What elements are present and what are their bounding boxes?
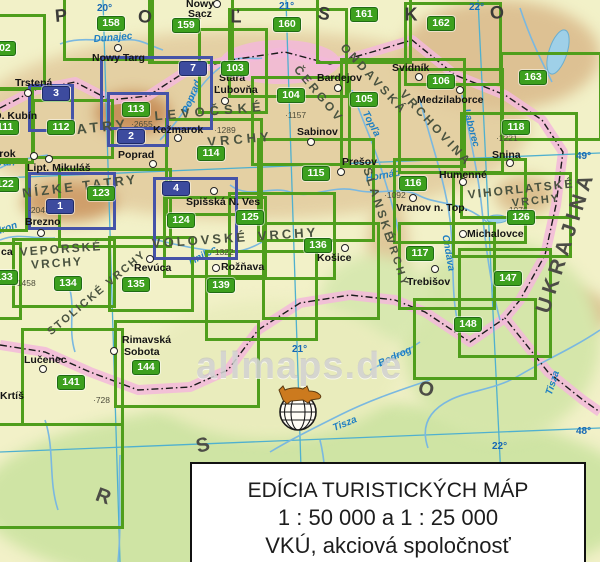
sheet-badge-133[interactable]: 133 — [0, 270, 18, 285]
sheet-badge-103[interactable]: 103 — [221, 61, 249, 76]
sheet-badge-148[interactable]: 148 — [454, 317, 482, 332]
town-label: Košice — [317, 252, 351, 264]
watermark-text: allmaps.de — [196, 345, 402, 388]
sheet-badge-161[interactable]: 161 — [350, 7, 378, 22]
sheet-badge-4[interactable]: 4 — [162, 181, 190, 196]
country-letter-polsko: P — [54, 5, 68, 27]
sheet-badge-122[interactable]: 122 — [0, 177, 19, 192]
town-marker — [174, 134, 182, 142]
town-marker — [334, 84, 342, 92]
town-label: Lučenec — [24, 354, 67, 366]
graticule-label: 21° — [279, 1, 294, 12]
country-letter-polsko: O — [137, 6, 153, 28]
country-letter-polsko: O — [489, 2, 506, 25]
town-label: Ľubovňa — [214, 84, 258, 96]
sheet-badge-123[interactable]: 123 — [87, 186, 115, 201]
sheet-badge-102[interactable]: 102 — [0, 41, 16, 56]
sheet-badge-134[interactable]: 134 — [54, 276, 82, 291]
elevation-label: ·1092 — [384, 190, 406, 200]
sheet-badge-106[interactable]: 106 — [427, 74, 455, 89]
map-sheet-140-outline[interactable] — [0, 423, 124, 529]
town-marker — [307, 138, 315, 146]
town-marker — [459, 178, 467, 186]
graticule-label: 48° — [576, 426, 591, 437]
map-sheet-148-outline[interactable] — [413, 298, 537, 380]
elevation-label: ·1289 — [214, 125, 236, 135]
edition-publisher: VKÚ, akciová spoločnosť — [192, 532, 584, 560]
sheet-badge-125[interactable]: 125 — [236, 210, 264, 225]
sheet-badge-114[interactable]: 114 — [197, 146, 225, 161]
graticule-label: 49° — [576, 151, 591, 162]
town-marker — [341, 244, 349, 252]
town-marker — [213, 0, 221, 8]
sheet-badge-158[interactable]: 158 — [97, 16, 125, 31]
sheet-badge-116[interactable]: 116 — [399, 176, 427, 191]
sheet-badge-113[interactable]: 113 — [122, 102, 150, 117]
town-label: Trebišov — [407, 276, 450, 288]
town-label: Revúca — [134, 262, 171, 274]
town-marker — [210, 187, 218, 195]
sheet-badge-2[interactable]: 2 — [117, 129, 145, 144]
sheet-badge-117[interactable]: 117 — [406, 246, 434, 261]
sheet-badge-159[interactable]: 159 — [172, 18, 200, 33]
sheet-badge-7[interactable]: 7 — [179, 61, 207, 76]
edition-info-box: EDÍCIA TURISTICKÝCH MÁP 1 : 50 000 a 1 :… — [190, 462, 586, 562]
town-label: Vranov n. Top. — [396, 202, 468, 214]
edition-title: EDÍCIA TURISTICKÝCH MÁP — [192, 477, 584, 504]
town-label: Rožňava — [221, 261, 264, 273]
town-label: Lipt. Mikuláš — [27, 162, 91, 174]
town-marker — [39, 365, 47, 373]
graticule-label: 22° — [469, 2, 484, 13]
town-label: Nowy Targ — [92, 52, 145, 64]
edition-scales: 1 : 50 000 a 1 : 25 000 — [192, 504, 584, 532]
town-marker — [30, 152, 38, 160]
sheet-badge-118[interactable]: 118 — [502, 120, 530, 135]
sheet-badge-1[interactable]: 1 — [46, 199, 74, 214]
town-label: ca — [1, 246, 13, 258]
town-label: Medzilaborce — [417, 94, 484, 106]
town-marker — [114, 44, 122, 52]
town-marker — [110, 347, 118, 355]
map-canvas: allmaps.de EDÍCIA TURISTICKÝCH MÁP 1 : 5… — [0, 0, 600, 562]
town-marker — [149, 160, 157, 168]
sheet-badge-160[interactable]: 160 — [273, 17, 301, 32]
town-marker — [415, 73, 423, 81]
sheet-badge-147[interactable]: 147 — [494, 271, 522, 286]
country-letter-polsko: K — [405, 5, 418, 26]
sheet-badge-105[interactable]: 105 — [350, 92, 378, 107]
town-marker — [212, 264, 220, 272]
town-marker — [37, 229, 45, 237]
sheet-badge-135[interactable]: 135 — [122, 277, 150, 292]
sheet-badge-3[interactable]: 3 — [42, 86, 70, 101]
town-marker — [456, 86, 464, 94]
sheet-badge-144[interactable]: 144 — [132, 360, 160, 375]
sheet-badge-163[interactable]: 163 — [519, 70, 547, 85]
town-label: Svidník — [392, 62, 429, 74]
sheet-badge-139[interactable]: 139 — [207, 278, 235, 293]
town-marker — [337, 168, 345, 176]
sheet-badge-141[interactable]: 141 — [57, 375, 85, 390]
town-marker — [431, 265, 439, 273]
town-marker — [24, 89, 32, 97]
town-marker — [409, 194, 417, 202]
town-label: Sobota — [124, 346, 160, 358]
town-label: Sabinov — [297, 126, 338, 138]
town-marker — [146, 255, 154, 263]
town-marker — [45, 155, 53, 163]
town-label: Spišská N. Ves — [186, 196, 260, 208]
town-marker — [221, 97, 229, 105]
town-label: Poprad — [118, 149, 154, 161]
elevation-label: ·728 — [93, 395, 110, 405]
sheet-badge-111[interactable]: 111 — [0, 120, 19, 135]
town-label: Rimavská — [122, 334, 171, 346]
town-marker — [459, 230, 467, 238]
elevation-label: ·2655 — [131, 119, 153, 129]
graticule-label: 20° — [97, 3, 112, 14]
sheet-badge-136[interactable]: 136 — [304, 238, 332, 253]
town-label: Brezno — [25, 216, 61, 228]
town-label: Krtíš — [0, 390, 24, 402]
graticule-label: 22° — [492, 441, 507, 452]
town-label: Bardejov — [317, 72, 362, 84]
sheet-badge-126[interactable]: 126 — [507, 210, 535, 225]
sheet-badge-124[interactable]: 124 — [167, 213, 195, 228]
town-label: Ružomberok — [0, 148, 16, 160]
town-label: Michalovce — [467, 228, 524, 240]
sheet-badge-162[interactable]: 162 — [427, 16, 455, 31]
elevation-label: ·1322 — [212, 247, 234, 257]
sheet-badge-112[interactable]: 112 — [47, 120, 75, 135]
sheet-badge-115[interactable]: 115 — [302, 166, 330, 181]
sheet-badge-104[interactable]: 104 — [277, 88, 305, 103]
town-label: Prešov — [342, 156, 377, 168]
town-marker — [506, 159, 514, 167]
country-letter-polsko: Ľ — [231, 7, 242, 28]
elevation-label: ·1157 — [285, 110, 306, 120]
